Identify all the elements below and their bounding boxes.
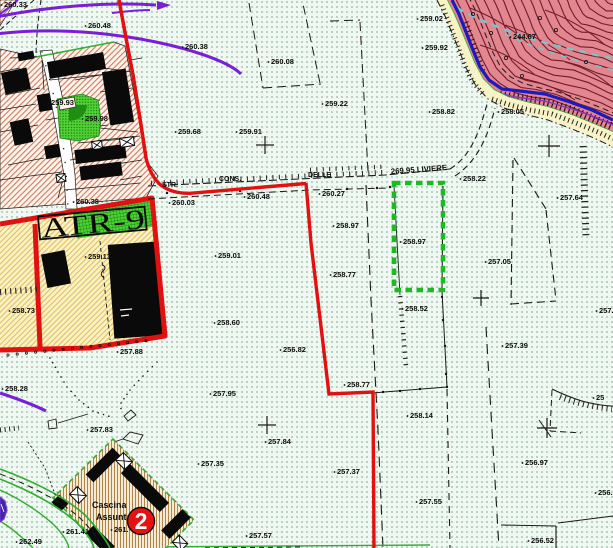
svg-text:Cascina: Cascina (92, 500, 128, 510)
svg-text:259.93: 259.93 (51, 98, 74, 107)
svg-text:258.97: 258.97 (403, 237, 426, 246)
svg-text:258.97: 258.97 (336, 221, 359, 230)
svg-text:258.05: 258.05 (501, 107, 524, 116)
svg-text:260.38: 260.38 (185, 42, 208, 51)
svg-text:DELLE: DELLE (308, 172, 331, 179)
svg-text:257.83: 257.83 (90, 425, 113, 434)
svg-text:257.84: 257.84 (268, 437, 292, 446)
svg-text:257.39: 257.39 (505, 341, 528, 350)
svg-text:258.14: 258.14 (410, 411, 434, 420)
svg-text:259.68: 259.68 (178, 127, 201, 136)
svg-text:257.57: 257.57 (249, 531, 272, 540)
svg-text:257.35: 257.35 (201, 459, 224, 468)
svg-text:257.37: 257.37 (337, 467, 360, 476)
svg-text:258.82: 258.82 (432, 107, 455, 116)
svg-text:260.48: 260.48 (247, 192, 270, 201)
svg-text:257.55: 257.55 (419, 497, 442, 506)
svg-text:STR.: STR. (162, 182, 178, 189)
svg-text:260.27: 260.27 (322, 189, 345, 198)
svg-text:259.02: 259.02 (420, 14, 443, 23)
svg-text:257.64: 257.64 (560, 193, 584, 202)
svg-text:244.67: 244.67 (513, 32, 536, 41)
svg-text:260.48: 260.48 (88, 21, 111, 30)
svg-text:262.49: 262.49 (19, 537, 42, 546)
svg-text:257.: 257. (599, 306, 613, 315)
svg-text:258.52: 258.52 (405, 304, 428, 313)
svg-text:256.82: 256.82 (283, 345, 306, 354)
svg-text:257.05: 257.05 (488, 257, 511, 266)
svg-text:256.52: 256.52 (531, 536, 554, 545)
svg-text:259.98: 259.98 (85, 114, 108, 123)
svg-text:258.73: 258.73 (12, 306, 35, 315)
svg-text:260.08: 260.08 (271, 57, 294, 66)
svg-text:258.60: 258.60 (217, 318, 240, 327)
svg-text:259.13: 259.13 (88, 252, 111, 261)
svg-text:256.97: 256.97 (525, 458, 548, 467)
svg-text:258.28: 258.28 (5, 384, 28, 393)
svg-text:259.01: 259.01 (218, 251, 241, 260)
svg-text:260.33: 260.33 (4, 0, 27, 9)
svg-text:260.38: 260.38 (76, 197, 99, 206)
svg-text:CONS.: CONS. (219, 176, 241, 183)
svg-text:259.22: 259.22 (325, 99, 348, 108)
svg-text:258.22: 258.22 (463, 174, 486, 183)
svg-text:261.: 261. (114, 525, 129, 534)
svg-text:261.41: 261.41 (66, 527, 89, 536)
svg-text:258.77: 258.77 (333, 270, 356, 279)
svg-text:259.91: 259.91 (239, 127, 262, 136)
svg-text:25: 25 (596, 393, 604, 402)
svg-text:257.95: 257.95 (213, 389, 236, 398)
svg-text:259.92: 259.92 (425, 43, 448, 52)
svg-text:256.: 256. (598, 488, 613, 497)
svg-text:258.77: 258.77 (347, 380, 370, 389)
svg-text:257.88: 257.88 (120, 347, 143, 356)
svg-text:260.03: 260.03 (172, 198, 195, 207)
svg-text:2: 2 (135, 508, 148, 534)
